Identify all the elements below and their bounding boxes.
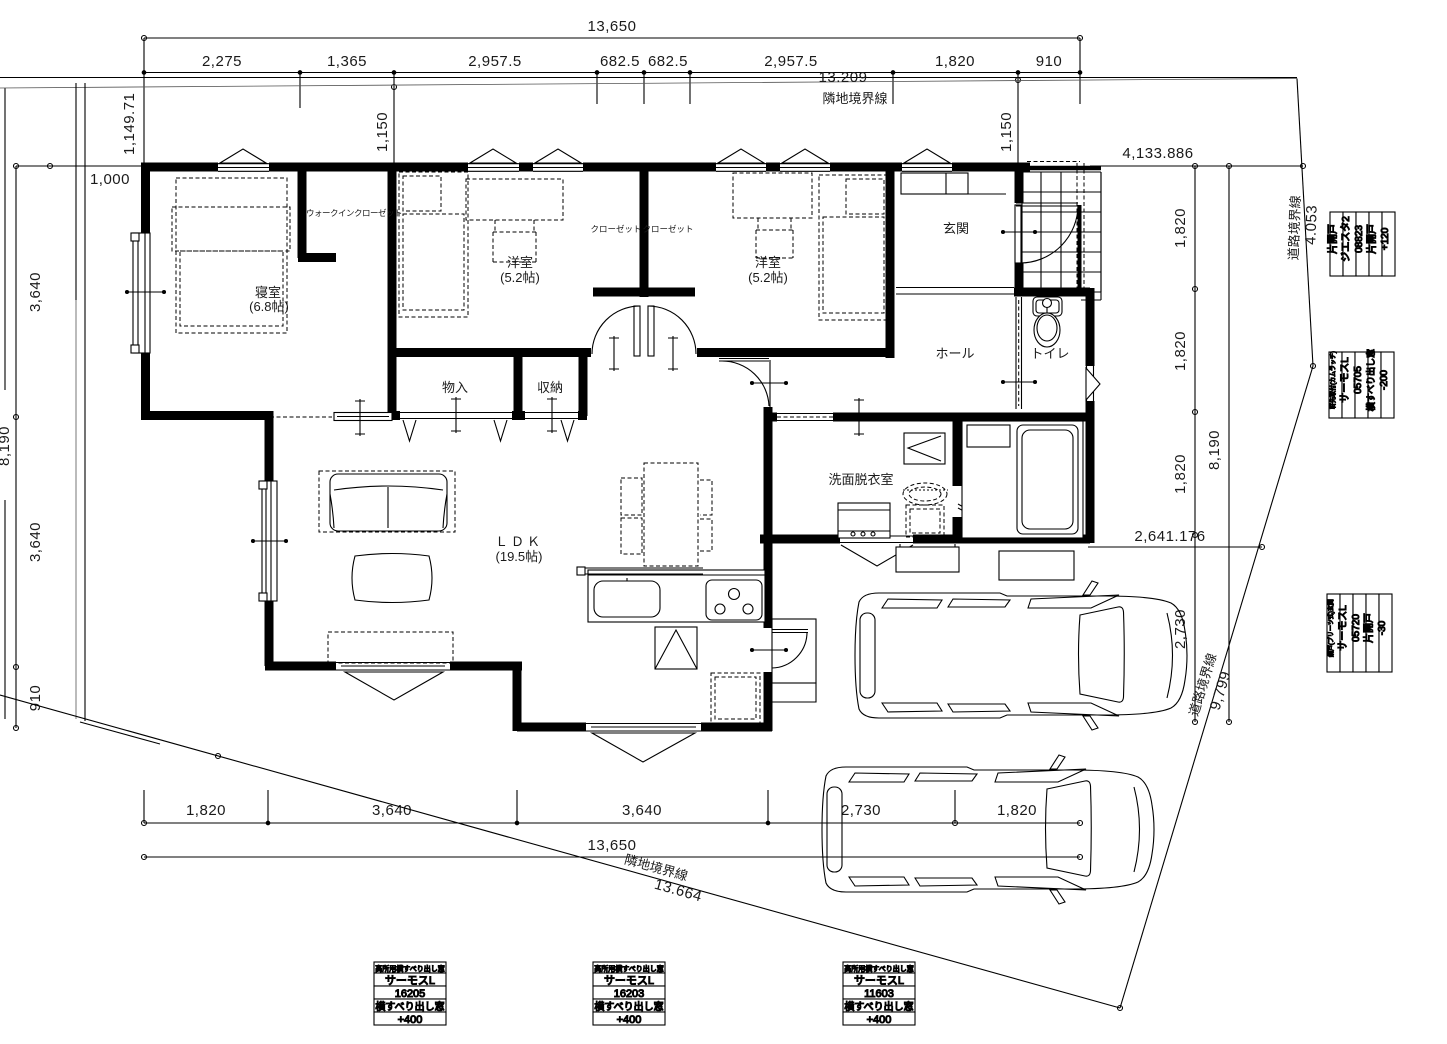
svg-text:16203: 16203 [614, 988, 645, 1000]
svg-text:1,820: 1,820 [1172, 454, 1189, 494]
svg-text:16205: 16205 [395, 988, 426, 1000]
svg-text:1,820: 1,820 [935, 53, 975, 70]
svg-text:道路境界線: 道路境界線 [1286, 195, 1303, 260]
svg-text:横すべり出し窓: 横すべり出し窓 [1365, 349, 1376, 411]
svg-text:サーモスL: サーモスL [385, 974, 435, 987]
svg-text:13,650: 13,650 [588, 18, 637, 35]
svg-text:4.053: 4.053 [1302, 205, 1320, 246]
svg-text:2,275: 2,275 [202, 53, 242, 70]
svg-text:ジエスタ2: ジエスタ2 [1340, 216, 1352, 262]
svg-text:1,150: 1,150 [998, 112, 1015, 152]
svg-text:クローゼット: クローゼット [642, 224, 693, 234]
svg-text:+400: +400 [398, 1014, 423, 1026]
svg-text:1,820: 1,820 [1172, 208, 1189, 248]
svg-text:8,190: 8,190 [0, 426, 13, 466]
svg-text:洗面脱衣室: 洗面脱衣室 [828, 472, 893, 487]
svg-text:玄関: 玄関 [943, 221, 969, 236]
svg-text:横すべり出し窓: 横すべり出し窓 [844, 1000, 913, 1013]
svg-text:910: 910 [1036, 53, 1063, 70]
svg-text:1,365: 1,365 [327, 53, 367, 70]
svg-text:1,820: 1,820 [997, 802, 1037, 819]
svg-text:08823: 08823 [1354, 225, 1365, 253]
svg-text:サーモスL: サーモスL [1339, 357, 1351, 403]
svg-text:4,133.886: 4,133.886 [1122, 145, 1193, 162]
svg-text:高所用横すべり出し窓: 高所用横すべり出し窓 [844, 964, 914, 973]
svg-text:(5.2帖): (5.2帖) [500, 270, 540, 285]
svg-text:隣地境界線: 隣地境界線 [822, 91, 887, 106]
svg-text:1,820: 1,820 [186, 802, 226, 819]
svg-text:3,640: 3,640 [622, 802, 662, 819]
svg-text:11603: 11603 [864, 988, 894, 1000]
svg-text:+400: +400 [867, 1014, 892, 1026]
svg-text:-200: -200 [1379, 370, 1390, 390]
svg-text:寝室: 寝室 [255, 285, 281, 300]
svg-text:高所用横すべり出し窓: 高所用横すべり出し窓 [375, 964, 445, 973]
svg-text:ホール: ホール [935, 346, 974, 361]
svg-text:2,641.176: 2,641.176 [1134, 528, 1205, 545]
svg-text:3,640: 3,640 [27, 272, 44, 312]
svg-text:軒先取付(カムラッチ): 軒先取付(カムラッチ) [1329, 351, 1337, 409]
svg-text:ＬＤＫ: ＬＤＫ [495, 534, 543, 549]
svg-text:1,150: 1,150 [374, 112, 391, 152]
svg-text:横すべり出し窓: 横すべり出し窓 [594, 1000, 663, 1013]
svg-text:横すべり出し窓: 横すべり出し窓 [375, 1000, 444, 1013]
svg-text:1,000: 1,000 [90, 171, 130, 188]
svg-text:682.5: 682.5 [600, 53, 640, 70]
svg-text:910: 910 [27, 685, 44, 712]
svg-text:05720: 05720 [1351, 614, 1362, 642]
svg-text:収納: 収納 [537, 380, 563, 395]
svg-text:サーモスL: サーモスL [854, 974, 904, 987]
svg-text:2,957.5: 2,957.5 [468, 53, 522, 70]
svg-text:(19.5帖): (19.5帖) [496, 549, 543, 564]
svg-text:-30: -30 [1377, 620, 1388, 635]
svg-text:網戸(プリーツ式)玄関: 網戸(プリーツ式)玄関 [1327, 599, 1335, 657]
svg-text:片開戸: 片開戸 [1326, 224, 1339, 254]
svg-text:1,149.71: 1,149.71 [121, 93, 138, 155]
svg-text:(5.2帖): (5.2帖) [748, 270, 788, 285]
svg-text:物入: 物入 [442, 380, 468, 395]
svg-text:クローゼット: クローゼット [590, 224, 641, 234]
svg-text:682.5: 682.5 [648, 53, 688, 70]
svg-text:片開戸: 片開戸 [1362, 613, 1375, 643]
svg-text:トイレ: トイレ [1030, 346, 1069, 361]
svg-text:1,820: 1,820 [1172, 331, 1189, 371]
svg-text:13.209: 13.209 [819, 69, 868, 86]
svg-text:8,190: 8,190 [1206, 430, 1223, 470]
svg-text:+400: +400 [617, 1014, 642, 1026]
svg-text:3,640: 3,640 [27, 522, 44, 562]
svg-text:ウォークインクローゼット: ウォークインクローゼット [306, 208, 402, 218]
svg-text:05705: 05705 [1353, 366, 1364, 394]
svg-text:+120: +120 [1380, 227, 1391, 250]
svg-text:洋室: 洋室 [755, 255, 781, 270]
svg-text:サーモスL: サーモスL [1337, 605, 1349, 651]
svg-text:2,957.5: 2,957.5 [764, 53, 818, 70]
svg-text:片開戸: 片開戸 [1365, 224, 1378, 254]
svg-text:高所用横すべり出し窓: 高所用横すべり出し窓 [594, 964, 664, 973]
svg-text:サーモスL: サーモスL [604, 974, 654, 987]
svg-text:2,730: 2,730 [841, 802, 881, 819]
